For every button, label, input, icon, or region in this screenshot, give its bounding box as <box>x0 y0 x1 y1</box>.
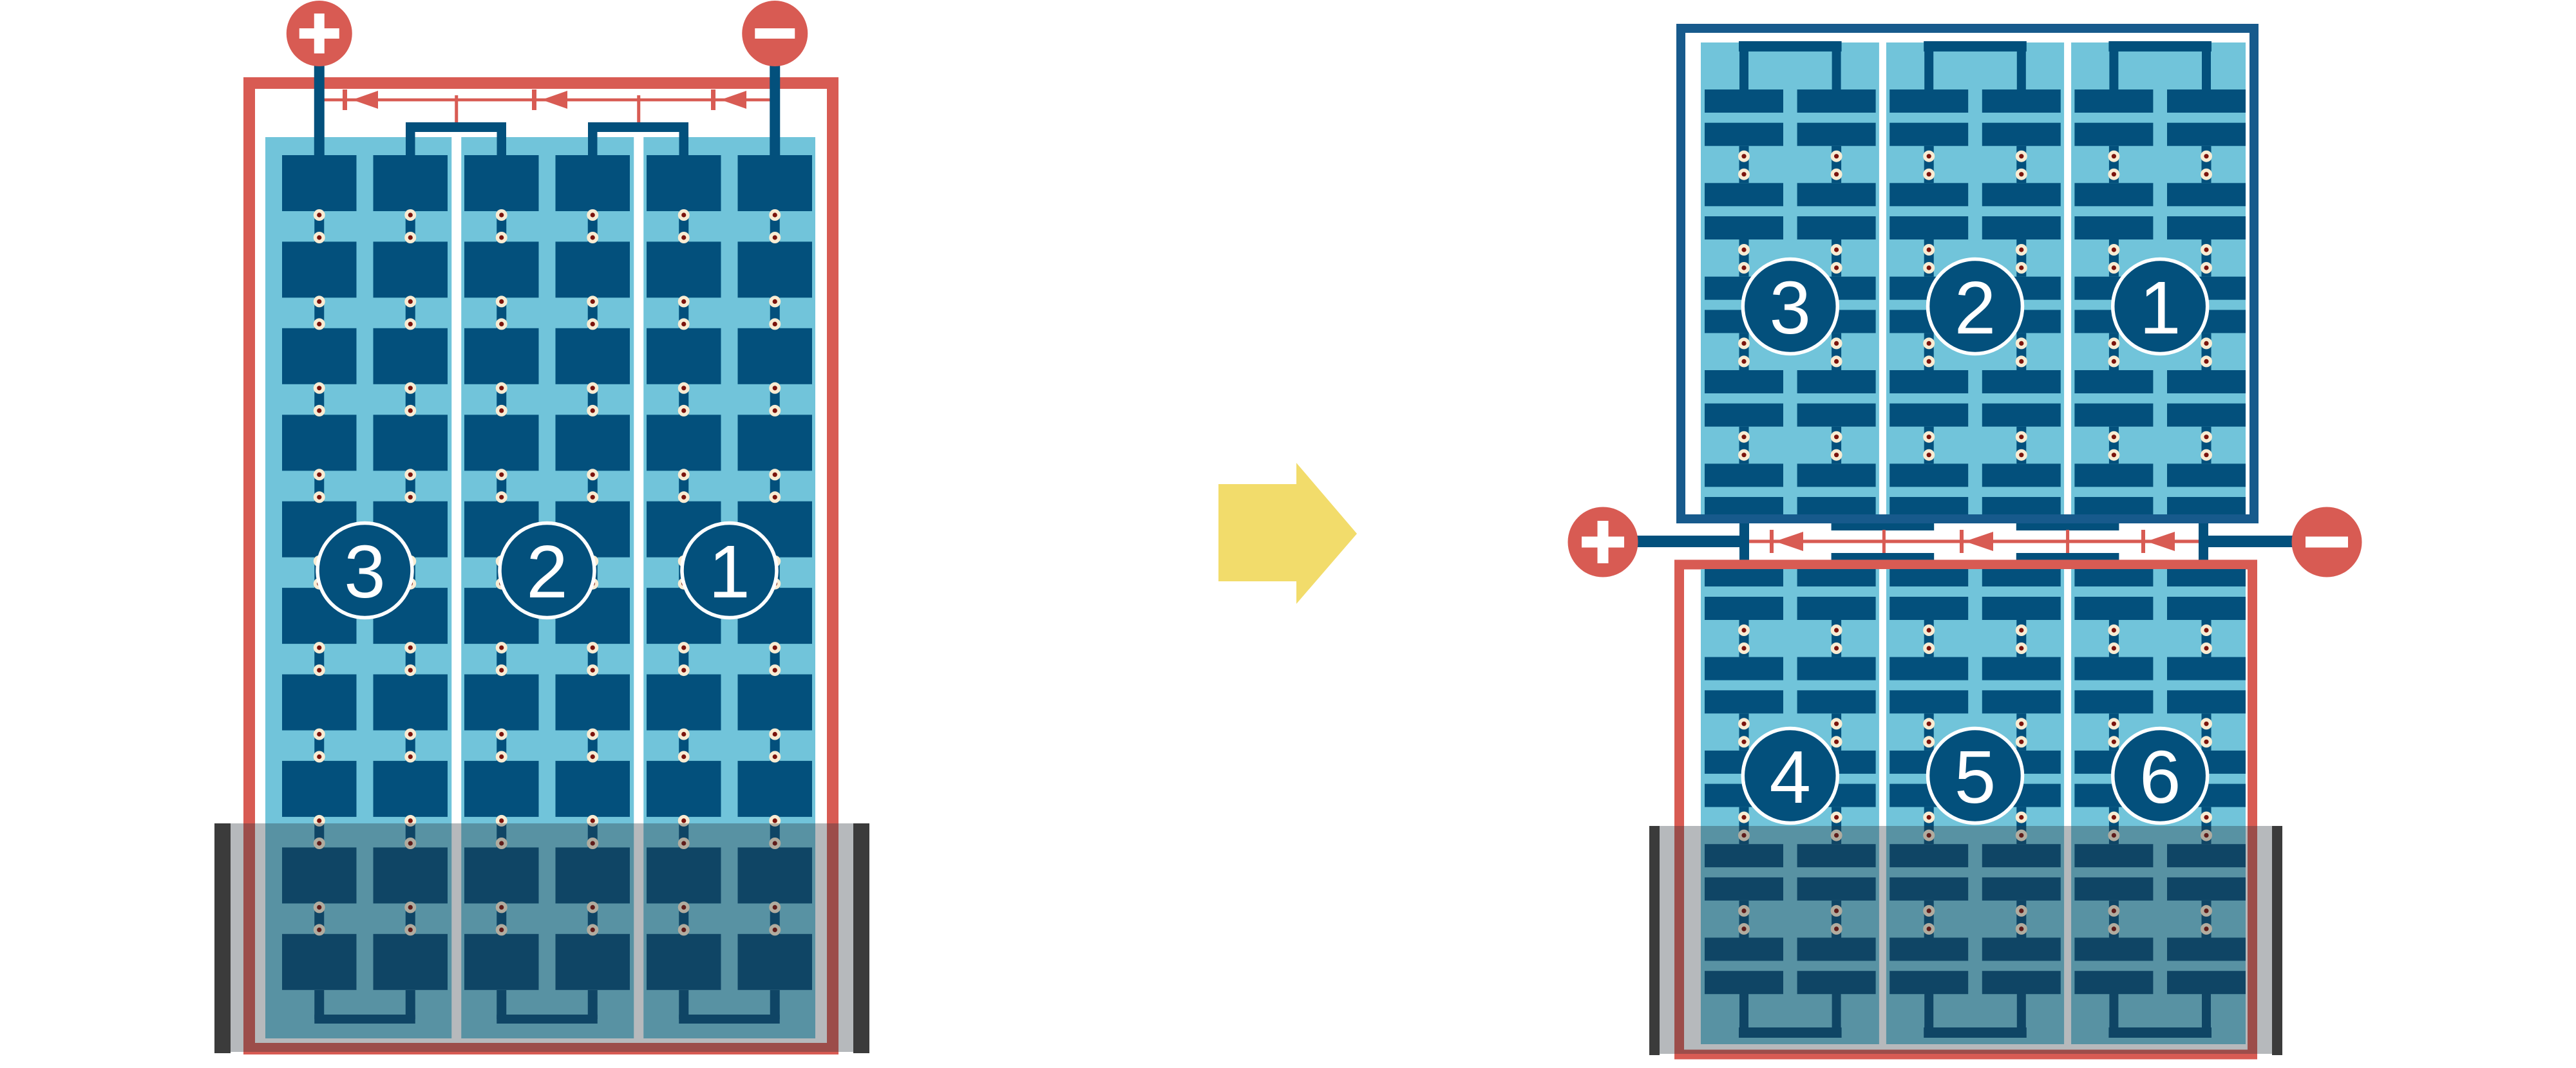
svg-text:2: 2 <box>526 530 568 614</box>
svg-text:3: 3 <box>344 530 386 614</box>
svg-text:1: 1 <box>708 530 750 614</box>
svg-text:3: 3 <box>1770 266 1812 350</box>
svg-text:1: 1 <box>2139 266 2181 350</box>
svg-text:4: 4 <box>1770 735 1812 819</box>
svg-text:5: 5 <box>1955 735 1996 819</box>
svg-text:6: 6 <box>2139 735 2181 819</box>
svg-text:2: 2 <box>1955 266 1996 350</box>
